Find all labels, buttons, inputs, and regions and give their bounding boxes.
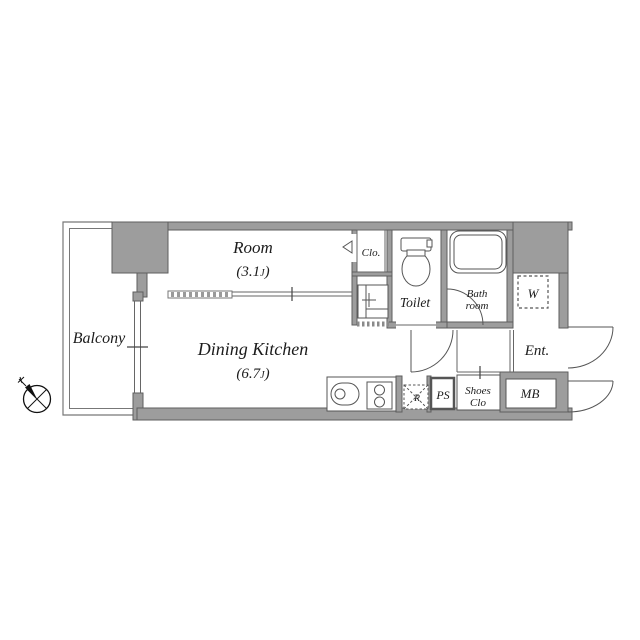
- entry-door-arc: [568, 327, 613, 368]
- wall-topright-block: [513, 222, 568, 273]
- sink-drain: [335, 389, 345, 399]
- washer-label: W: [528, 286, 540, 301]
- toilet-seat-hinge: [407, 250, 425, 256]
- dining-kitchen-label: Dining Kitchen: [197, 339, 309, 359]
- balcony-label: Balcony: [73, 330, 126, 347]
- floor-plan-drawing: Balcony Room (3.1J) Dining Kitchen (6.7J…: [0, 0, 640, 640]
- hall-door: [411, 330, 453, 372]
- hall-door-arc: [411, 330, 453, 372]
- vanity-outline: [358, 285, 388, 318]
- stove-burner-1: [375, 385, 385, 395]
- closet-door-swing-triangle: [343, 241, 352, 253]
- toilet-label: Toilet: [400, 295, 432, 310]
- bathroom-label-line2: room: [466, 300, 489, 312]
- wall-left-upper-stub: [133, 292, 143, 301]
- wall-bath-bottom: [447, 322, 513, 328]
- stove-burner-2: [375, 397, 385, 407]
- room-label: Room: [232, 238, 273, 257]
- bathtub: [450, 231, 506, 273]
- wall-closet-bottom: [352, 272, 392, 276]
- dk-window: [127, 301, 148, 393]
- entrance-step-lines: [457, 330, 514, 372]
- shoes-closet-label-line2: Clo: [470, 397, 486, 409]
- kitchen-counter: [327, 377, 396, 411]
- wall-toilet-bath: [441, 230, 447, 325]
- meter-box-door-arc: [568, 381, 613, 412]
- entrance-label: Ent.: [524, 343, 550, 359]
- wall-kitchen-stub: [396, 376, 402, 412]
- room-dk-divider: [168, 287, 352, 301]
- wall-right-upper: [559, 273, 568, 328]
- meter-box-door: [568, 381, 613, 412]
- wall-topleft-block: [112, 222, 168, 273]
- toilet-flush-button: [427, 240, 432, 247]
- bathtub-inner: [454, 235, 502, 269]
- pipe-space-label: PS: [435, 388, 449, 402]
- shoes-closet-label-line1: Shoes: [465, 385, 491, 397]
- compass-north-mark: [18, 377, 26, 386]
- entry-door: [568, 327, 613, 368]
- meter-box-label: MB: [520, 386, 540, 401]
- floor-plan-page: Balcony Room (3.1J) Dining Kitchen (6.7J…: [0, 0, 640, 640]
- dining-kitchen-size-label: (6.7J): [236, 366, 269, 382]
- washbasin-vanity: [358, 285, 388, 318]
- toilet-bowl: [402, 252, 430, 286]
- room-size-label: (3.1J): [236, 264, 269, 280]
- refrigerator-label: R: [413, 394, 420, 404]
- toilet-fixture: [401, 238, 432, 286]
- wall-bath-east: [507, 230, 513, 328]
- bathroom-label-line1: Bath: [467, 288, 488, 300]
- closet-label: Clo.: [362, 247, 381, 259]
- wall-top: [112, 222, 572, 230]
- compass-icon: [18, 377, 51, 413]
